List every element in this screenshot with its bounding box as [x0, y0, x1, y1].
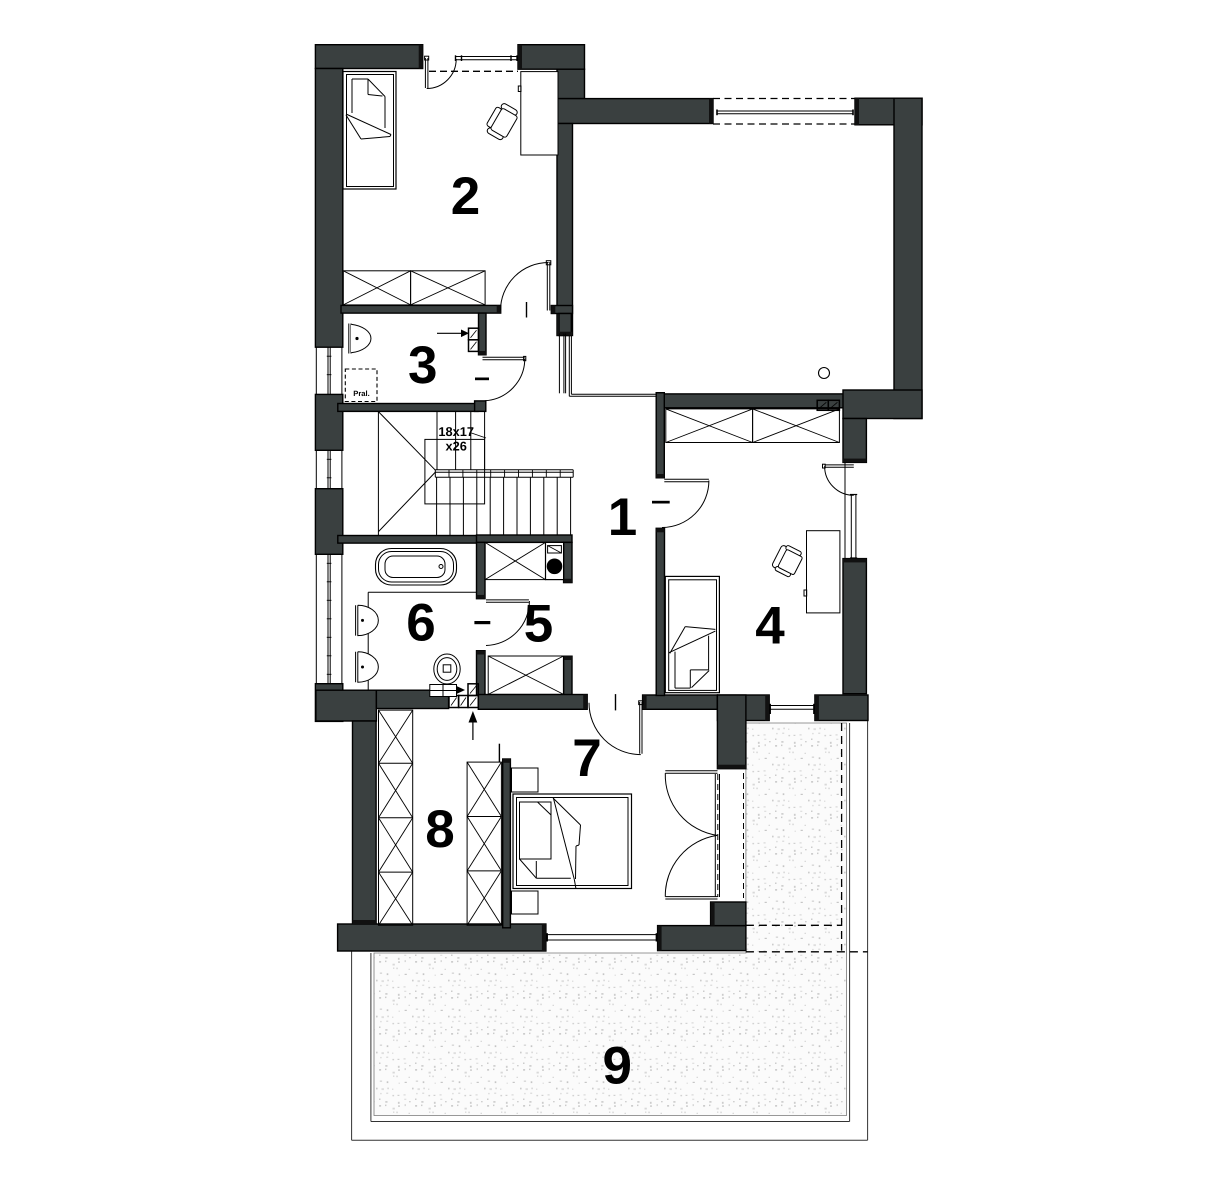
svg-text:1: 1 — [608, 488, 637, 547]
svg-text:x26: x26 — [446, 438, 467, 453]
svg-text:8: 8 — [425, 800, 454, 859]
svg-text:Pral.: Pral. — [353, 389, 369, 398]
svg-text:2: 2 — [451, 167, 480, 226]
svg-text:4: 4 — [755, 597, 785, 656]
svg-text:7: 7 — [572, 729, 601, 788]
svg-text:3: 3 — [408, 336, 437, 395]
svg-text:18x17: 18x17 — [438, 424, 474, 439]
svg-text:9: 9 — [603, 1037, 632, 1096]
svg-text:5: 5 — [524, 595, 553, 654]
svg-text:6: 6 — [406, 594, 435, 653]
